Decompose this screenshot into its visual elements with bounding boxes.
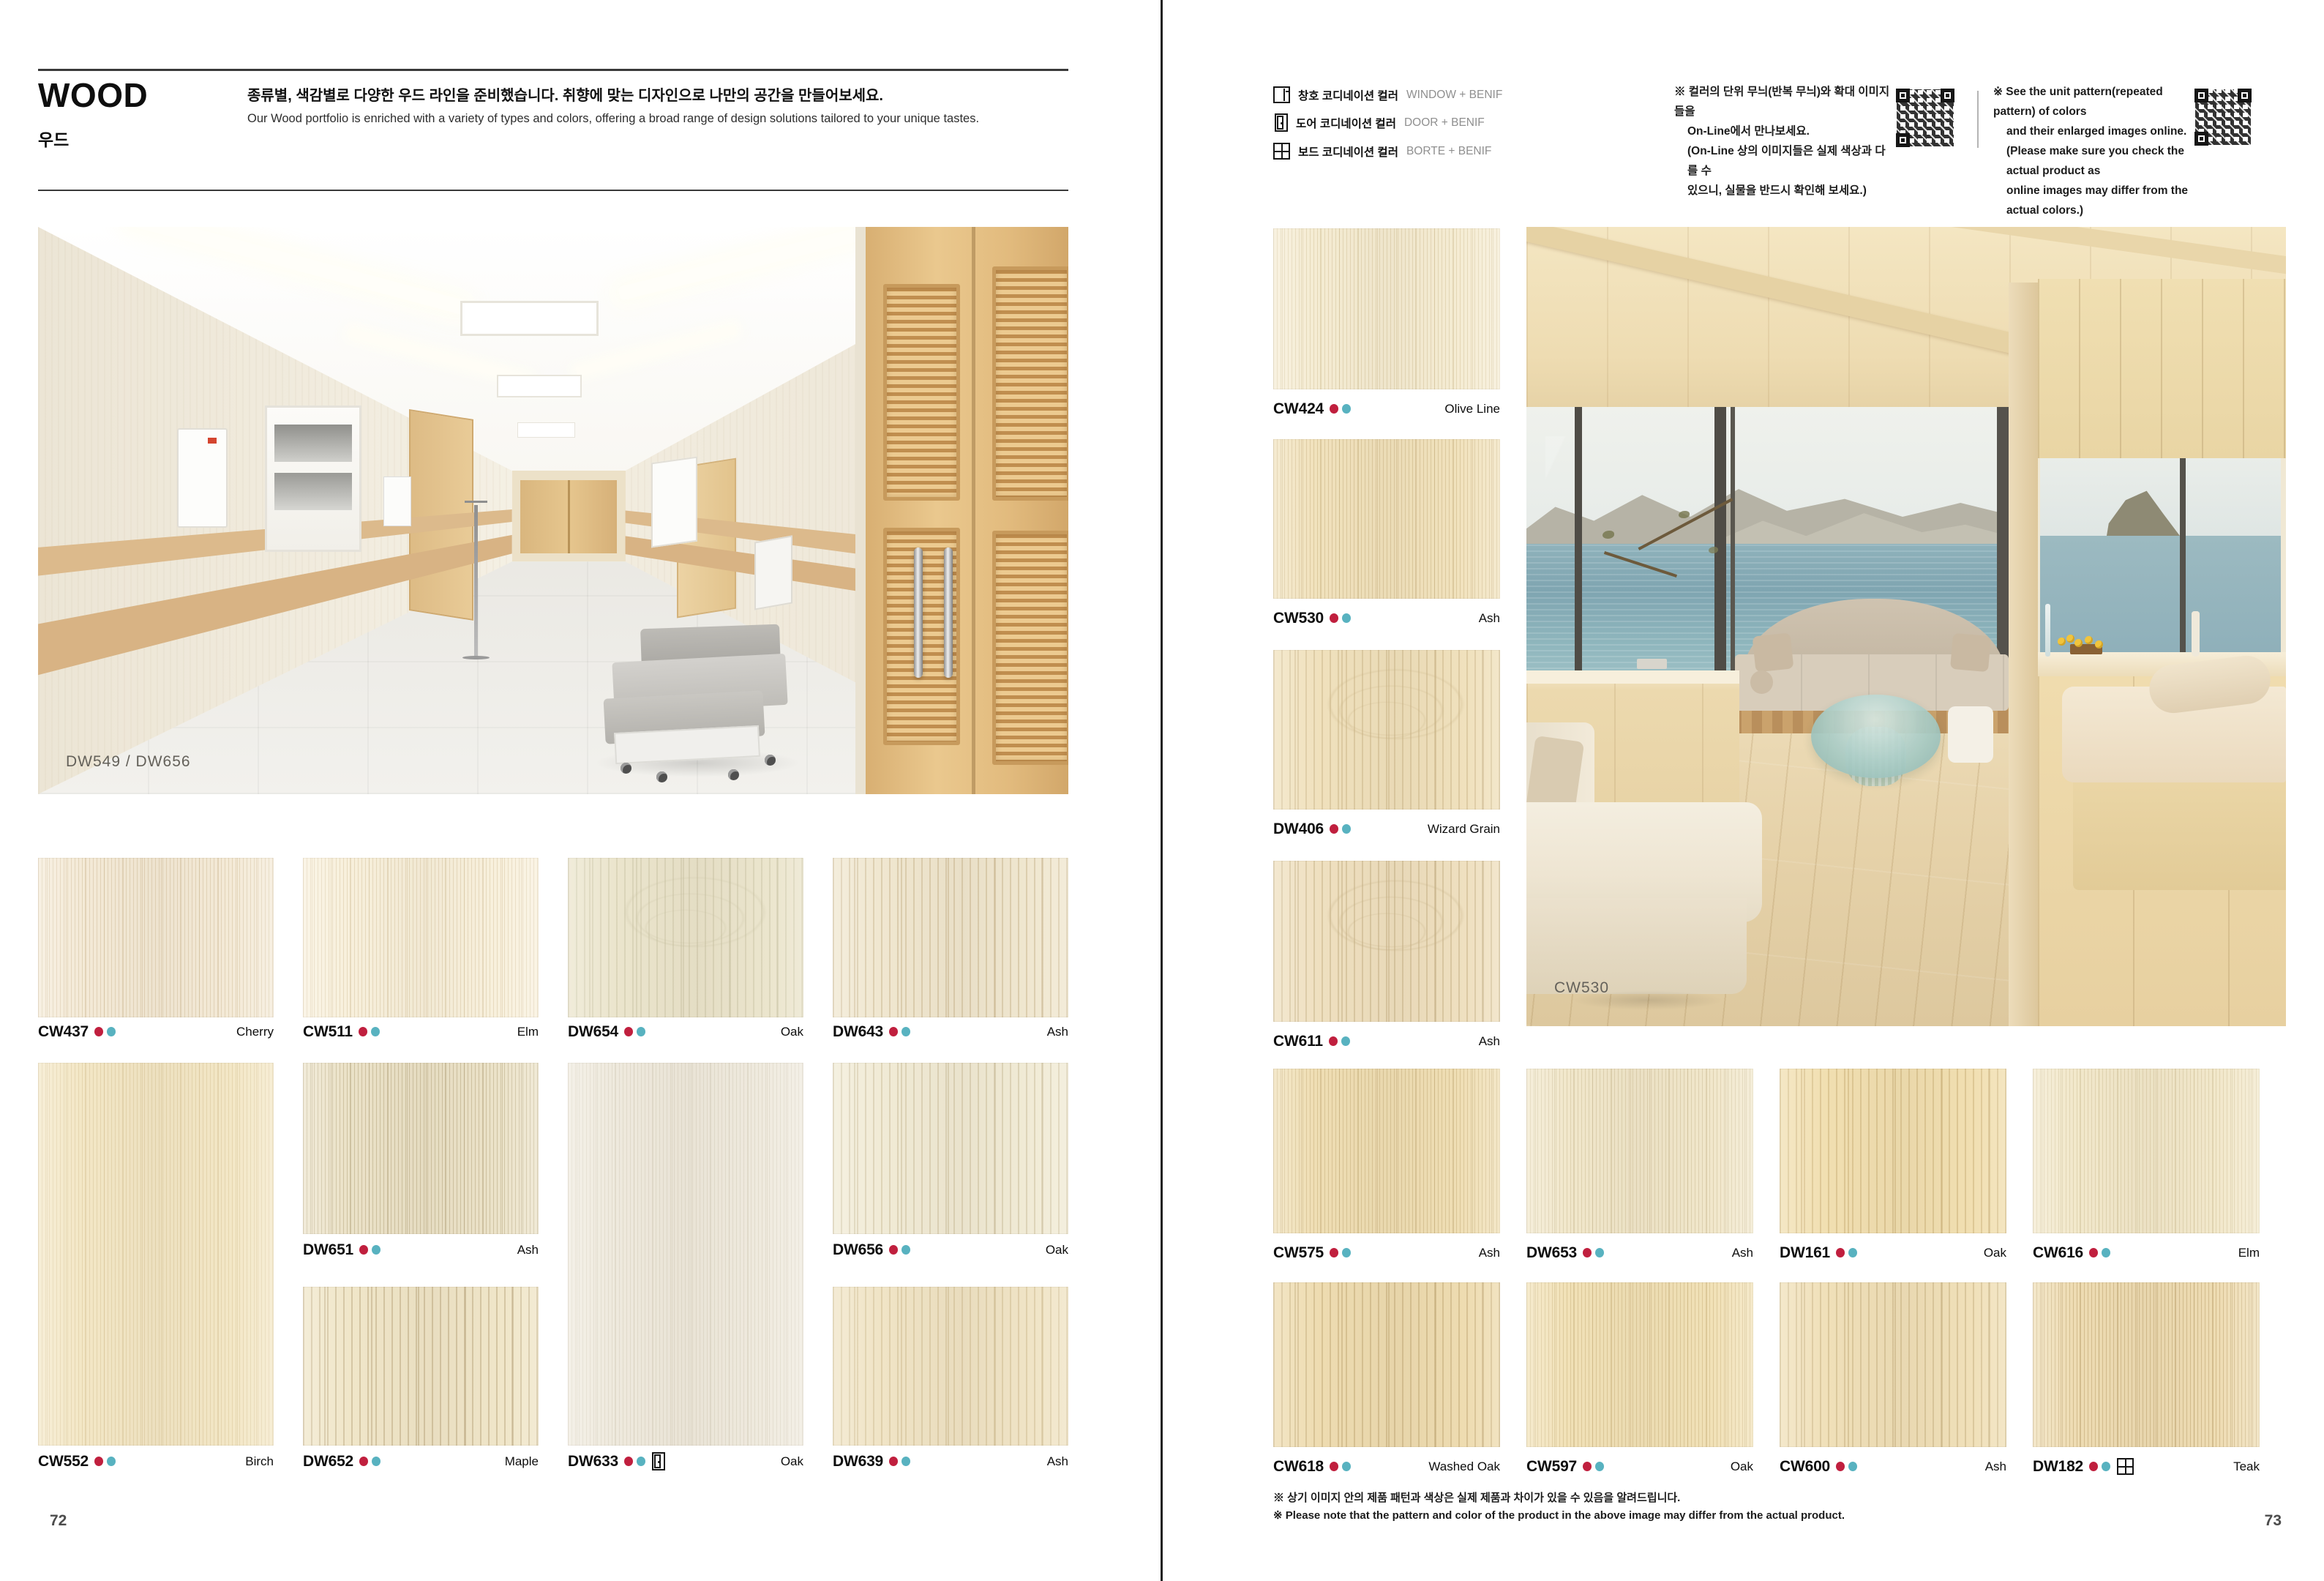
window-color-dot — [1583, 1462, 1592, 1471]
swatch-code: CW530 — [1273, 610, 1324, 627]
swatch-cw597 — [1526, 1282, 1753, 1447]
swatch-dw651 — [303, 1063, 539, 1234]
window-color-dot — [1330, 613, 1338, 623]
page-title: WOOD — [38, 75, 148, 115]
swatch-code: DW182 — [2033, 1458, 2083, 1476]
header-top-rule — [38, 69, 1068, 71]
note-line: and their enlarged images online. — [1993, 122, 2191, 141]
footnote-korean: ※ 상기 이미지 안의 제품 패턴과 색상은 실제 제품과 차이가 있을 수 있… — [1273, 1490, 1680, 1505]
sofa-pillow-1 — [1753, 632, 1794, 672]
swatch-label: CW511 Elm — [303, 1022, 539, 1042]
swatch-code: DW653 — [1526, 1244, 1577, 1262]
door-color-dot — [372, 1457, 381, 1466]
sofa-pillow-2 — [1950, 633, 1991, 672]
swatch-label: DW652 Maple — [303, 1451, 539, 1471]
swatch-dw654 — [568, 858, 803, 1017]
back-doors-seam — [568, 480, 571, 554]
device-led — [208, 438, 217, 444]
wall-plate-small — [383, 476, 412, 526]
book-stack — [1637, 659, 1667, 669]
door-color-dot — [1848, 1248, 1857, 1257]
online-note-english: ※ See the unit pattern(repeated pattern)… — [1993, 82, 2191, 220]
legend-kr: 창호 코디네이션 컬러 — [1298, 87, 1398, 103]
swatch-code: CW611 — [1273, 1033, 1323, 1050]
swatch-cw511 — [303, 858, 539, 1017]
qr-finder — [2194, 89, 2208, 102]
hero-caption-left: DW549 / DW656 — [66, 753, 191, 771]
upper-cabinets — [2038, 279, 2286, 458]
swatch-cw618 — [1273, 1282, 1500, 1447]
legend-en: WINDOW + BENIF — [1406, 89, 1502, 102]
note-line: 있으니, 실물을 반드시 확인해 보세요.) — [1674, 181, 1894, 201]
window-color-dot — [2089, 1462, 2098, 1471]
swatch-label: CW424 Olive Line — [1273, 399, 1500, 419]
wall-cabinet — [265, 405, 362, 552]
swatch-code: DW633 — [568, 1453, 618, 1470]
swatch-label: CW575 Ash — [1273, 1243, 1500, 1263]
swatch-cw552 — [38, 1063, 274, 1446]
window-color-dot — [1836, 1248, 1845, 1257]
page-number-right: 73 — [2265, 1512, 2282, 1530]
note-line: online images may differ from the actual… — [1993, 181, 2191, 220]
swatch-label: DW643 Ash — [833, 1022, 1068, 1042]
bottle — [2045, 604, 2050, 656]
hero-caption-right: CW530 — [1554, 979, 1609, 997]
door-color-dot — [1341, 1036, 1350, 1046]
swatch-code: DW656 — [833, 1241, 883, 1259]
swatch-label: CW597 Oak — [1526, 1457, 1753, 1476]
plant-leaves-2 — [1679, 511, 1690, 518]
cabinet-glass-row-2 — [274, 473, 352, 509]
swatch-name: Olive Line — [1444, 402, 1500, 416]
swatch-cw530 — [1273, 439, 1500, 599]
door-color-dot — [902, 1027, 910, 1036]
louver-door-seam — [972, 227, 976, 794]
door-color-dot — [1595, 1248, 1604, 1257]
lemon — [2085, 636, 2093, 644]
window-color-dot — [359, 1027, 367, 1036]
swatch-dw406 — [1273, 650, 1500, 810]
swatch-name: Ash — [1047, 1454, 1068, 1469]
swatch-cw424 — [1273, 228, 1500, 389]
door-color-dot — [2102, 1462, 2110, 1471]
door-color-dot — [372, 1245, 381, 1255]
door-color-dot — [1342, 824, 1351, 834]
door-frame-strip — [855, 227, 866, 794]
door-color-dot — [2102, 1248, 2110, 1257]
window-color-dot — [1329, 1036, 1338, 1046]
swatch-dw652 — [303, 1287, 539, 1446]
swatch-label: CW437 Cherry — [38, 1022, 274, 1042]
iv-pole — [474, 505, 478, 658]
ceiling-light-panel — [460, 301, 599, 337]
door-color-dot — [902, 1245, 910, 1255]
page-gutter-divider — [1161, 0, 1163, 1581]
swatch-code: CW600 — [1780, 1458, 1830, 1476]
header-bottom-rule — [38, 190, 1068, 191]
legend-window: 창호 코디네이션 컬러 WINDOW + BENIF — [1273, 85, 1502, 105]
window-color-dot — [889, 1245, 898, 1255]
door-color-dot — [1342, 404, 1351, 414]
swatch-name: Ash — [1732, 1246, 1753, 1260]
louver-panel-1 — [883, 284, 961, 501]
swatch-code: DW161 — [1780, 1244, 1830, 1262]
ceiling-light-panel-2 — [497, 375, 582, 398]
swatch-name: Elm — [2238, 1246, 2260, 1260]
swatch-label: CW530 Ash — [1273, 608, 1500, 628]
window-color-dot — [889, 1027, 898, 1036]
page-number-left: 72 — [50, 1512, 67, 1530]
swatch-name: Teak — [2233, 1459, 2260, 1474]
lemon — [2066, 635, 2074, 643]
footnote-english: ※ Please note that the pattern and color… — [1273, 1509, 1845, 1522]
swatch-code: CW424 — [1273, 400, 1324, 418]
swatch-name: Oak — [1046, 1243, 1068, 1257]
white-stool — [1948, 706, 1993, 762]
door-icon — [652, 1452, 665, 1470]
legend-kr: 도어 코디네이션 컬러 — [1296, 115, 1396, 131]
swatch-cw611 — [1273, 861, 1500, 1022]
swatch-name: Oak — [1731, 1459, 1753, 1474]
legend-board: 보드 코디네이션 컬러 BORTE + BENIF — [1273, 141, 1491, 161]
swatch-label: DW656 Oak — [833, 1240, 1068, 1260]
swatch-code: CW511 — [303, 1023, 353, 1041]
legend-door: 도어 코디네이션 컬러 DOOR + BENIF — [1275, 113, 1485, 132]
swatch-label: DW161 Oak — [1780, 1243, 2006, 1263]
swatch-dw643 — [833, 858, 1068, 1017]
window-color-dot — [1330, 1248, 1338, 1257]
swatch-label: CW618 Washed Oak — [1273, 1457, 1500, 1476]
swatch-code: DW652 — [303, 1453, 353, 1470]
soap-dispenser — [754, 536, 792, 610]
page-title-korean: 우드 — [38, 126, 69, 151]
window-color-dot — [624, 1027, 633, 1036]
swatch-dw653 — [1526, 1069, 1753, 1233]
cabinet-glass-row-1 — [274, 425, 352, 461]
wall-device-left — [177, 428, 228, 528]
swatch-label: DW651 Ash — [303, 1240, 539, 1260]
qr-finder — [2194, 132, 2208, 146]
swatch-cw575 — [1273, 1069, 1500, 1233]
board-icon — [1273, 143, 1290, 160]
headline-korean: 종류별, 색감별로 다양한 우드 라인을 준비했습니다. 취향에 맞는 디자인으… — [247, 83, 883, 105]
swatch-code: CW618 — [1273, 1458, 1324, 1476]
plant-leaves-3 — [1709, 547, 1718, 553]
door-color-dot — [1848, 1462, 1857, 1471]
swatch-name: Maple — [505, 1454, 539, 1469]
note-line: (Please make sure you check the actual p… — [1993, 141, 2191, 181]
online-note-korean: ※ 컬러의 단위 무늬(반복 무늬)와 확대 이미지들을 On-Line에서 만… — [1674, 82, 1894, 201]
swatch-dw656 — [833, 1063, 1068, 1234]
swatch-code: CW437 — [38, 1023, 89, 1041]
bed-wheel-2 — [656, 771, 667, 782]
swatch-name: Oak — [781, 1025, 803, 1039]
window-icon — [1273, 86, 1290, 103]
swatch-dw639 — [833, 1287, 1068, 1446]
swatch-dw161 — [1780, 1069, 2006, 1233]
qr-finder — [1941, 89, 1954, 102]
window-color-dot — [1583, 1248, 1592, 1257]
swatch-dw633 — [568, 1063, 803, 1446]
window-color-dot — [889, 1457, 898, 1466]
ball-pillow — [1750, 670, 1773, 694]
bed-wheel-1 — [621, 763, 631, 774]
cabin-sea — [2040, 536, 2281, 652]
swatch-label: CW600 Ash — [1780, 1457, 2006, 1476]
window-color-dot — [1330, 1462, 1338, 1471]
headline-english: Our Wood portfolio is enriched with a va… — [247, 112, 979, 126]
swatch-label: CW616 Elm — [2033, 1243, 2260, 1263]
door-color-dot — [902, 1457, 910, 1466]
console-top — [1526, 670, 1739, 684]
swatch-label: DW406 Wizard Grain — [1273, 819, 1500, 839]
swatch-label: DW639 Ash — [833, 1451, 1068, 1471]
lemon — [2095, 640, 2103, 649]
swatch-code: CW552 — [38, 1453, 89, 1470]
swatch-label: DW182 Teak — [2033, 1457, 2260, 1476]
swatch-name: Oak — [1984, 1246, 2006, 1260]
legend-kr: 보드 코디네이션 컬러 — [1298, 143, 1398, 160]
note-divider — [1977, 91, 1979, 148]
swatch-dw182 — [2033, 1282, 2260, 1447]
note-line: ※ 컬러의 단위 무늬(반복 무늬)와 확대 이미지들을 — [1674, 82, 1894, 122]
swatch-name: Elm — [517, 1025, 539, 1039]
door-color-dot — [371, 1027, 380, 1036]
swatch-label: CW611 Ash — [1273, 1031, 1500, 1051]
door-color-dot — [1342, 613, 1351, 623]
qr-finder — [2238, 89, 2252, 102]
louver-panel-4 — [992, 531, 1068, 765]
qr-code-korean — [1894, 86, 1957, 149]
door-color-dot — [107, 1027, 116, 1036]
swatch-code: CW616 — [2033, 1244, 2083, 1262]
swatch-name: Ash — [1479, 1246, 1500, 1260]
wall-device-right — [651, 456, 697, 547]
swatch-name: Birch — [245, 1454, 274, 1469]
swatch-code: DW651 — [303, 1241, 353, 1259]
note-line: (On-Line 상의 이미지들은 실제 색상과 다를 수 — [1674, 141, 1894, 181]
plant-leaves-1 — [1603, 531, 1614, 539]
louver-panel-3 — [992, 266, 1068, 501]
qr-finder — [1896, 133, 1910, 147]
window-color-dot — [1330, 404, 1338, 414]
interior-photo: CW530 — [1526, 227, 2286, 1026]
lemon — [2058, 638, 2066, 646]
board-icon — [2117, 1458, 2134, 1475]
swatch-code: DW643 — [833, 1023, 883, 1041]
swatch-name: Wizard Grain — [1428, 822, 1500, 837]
swatch-label: DW653 Ash — [1526, 1243, 1753, 1263]
door-color-dot — [637, 1457, 645, 1466]
catalog-spread: { "colors": { "dot_red": "#c01f3e", "dot… — [0, 0, 2324, 1581]
note-line: ※ See the unit pattern(repeated pattern)… — [1993, 82, 2191, 122]
window-color-dot — [359, 1245, 368, 1255]
glass-jug — [2192, 611, 2200, 656]
bed-wheel-4 — [765, 755, 776, 766]
legend-en: DOOR + BENIF — [1404, 116, 1485, 130]
swatch-name: Ash — [1047, 1025, 1068, 1039]
window-mullion-3 — [1731, 407, 1735, 699]
swatch-cw616 — [2033, 1069, 2260, 1233]
swatch-name: Ash — [517, 1243, 539, 1257]
iv-pole-hook — [465, 501, 487, 504]
door-color-dot — [1342, 1248, 1351, 1257]
window-color-dot — [94, 1027, 103, 1036]
door-color-dot — [637, 1027, 645, 1036]
window-color-dot — [1330, 824, 1338, 834]
swatch-label: DW633 Oak — [568, 1451, 803, 1471]
window-color-dot — [2089, 1248, 2098, 1257]
swatch-code: CW575 — [1273, 1244, 1324, 1262]
cabin-window — [2040, 458, 2281, 652]
swatch-name: Oak — [781, 1454, 803, 1469]
swatch-name: Ash — [1985, 1459, 2006, 1474]
qr-finder — [1896, 89, 1910, 102]
window-color-dot — [359, 1457, 368, 1466]
door-handle-bar-2 — [944, 547, 953, 678]
ceiling-light-panel-3 — [517, 422, 575, 438]
swatch-name: Ash — [1479, 611, 1500, 626]
cabin-window-mullion — [2180, 458, 2186, 652]
wall-pillar — [2009, 283, 2037, 1026]
swatch-label: DW654 Oak — [568, 1022, 803, 1042]
swatch-cw600 — [1780, 1282, 2006, 1447]
legend-en: BORTE + BENIF — [1406, 145, 1491, 158]
door-color-dot — [1342, 1462, 1351, 1471]
window-color-dot — [1836, 1462, 1845, 1471]
swatch-code: DW406 — [1273, 821, 1324, 838]
window-color-dot — [94, 1457, 103, 1466]
window-color-dot — [624, 1457, 633, 1466]
swatch-name: Washed Oak — [1428, 1459, 1500, 1474]
door-icon — [1275, 113, 1288, 132]
swatch-code: CW597 — [1526, 1458, 1577, 1476]
glass-coffee-table — [1811, 695, 1940, 779]
swatch-label: CW552 Birch — [38, 1451, 274, 1471]
right-cabinetry — [2038, 279, 2286, 1026]
swatch-cw437 — [38, 858, 274, 1017]
note-line: On-Line에서 만나보세요. — [1674, 122, 1894, 141]
door-color-dot — [107, 1457, 116, 1466]
door-color-dot — [1595, 1462, 1604, 1471]
qr-code-english — [2192, 86, 2254, 148]
swatch-code: DW654 — [568, 1023, 618, 1041]
swatch-name: Cherry — [236, 1025, 274, 1039]
corridor-photo: DW549 / DW656 — [38, 227, 1068, 794]
door-handle-bar-1 — [914, 547, 923, 678]
swatch-code: DW639 — [833, 1453, 883, 1470]
swatch-name: Ash — [1479, 1034, 1500, 1049]
